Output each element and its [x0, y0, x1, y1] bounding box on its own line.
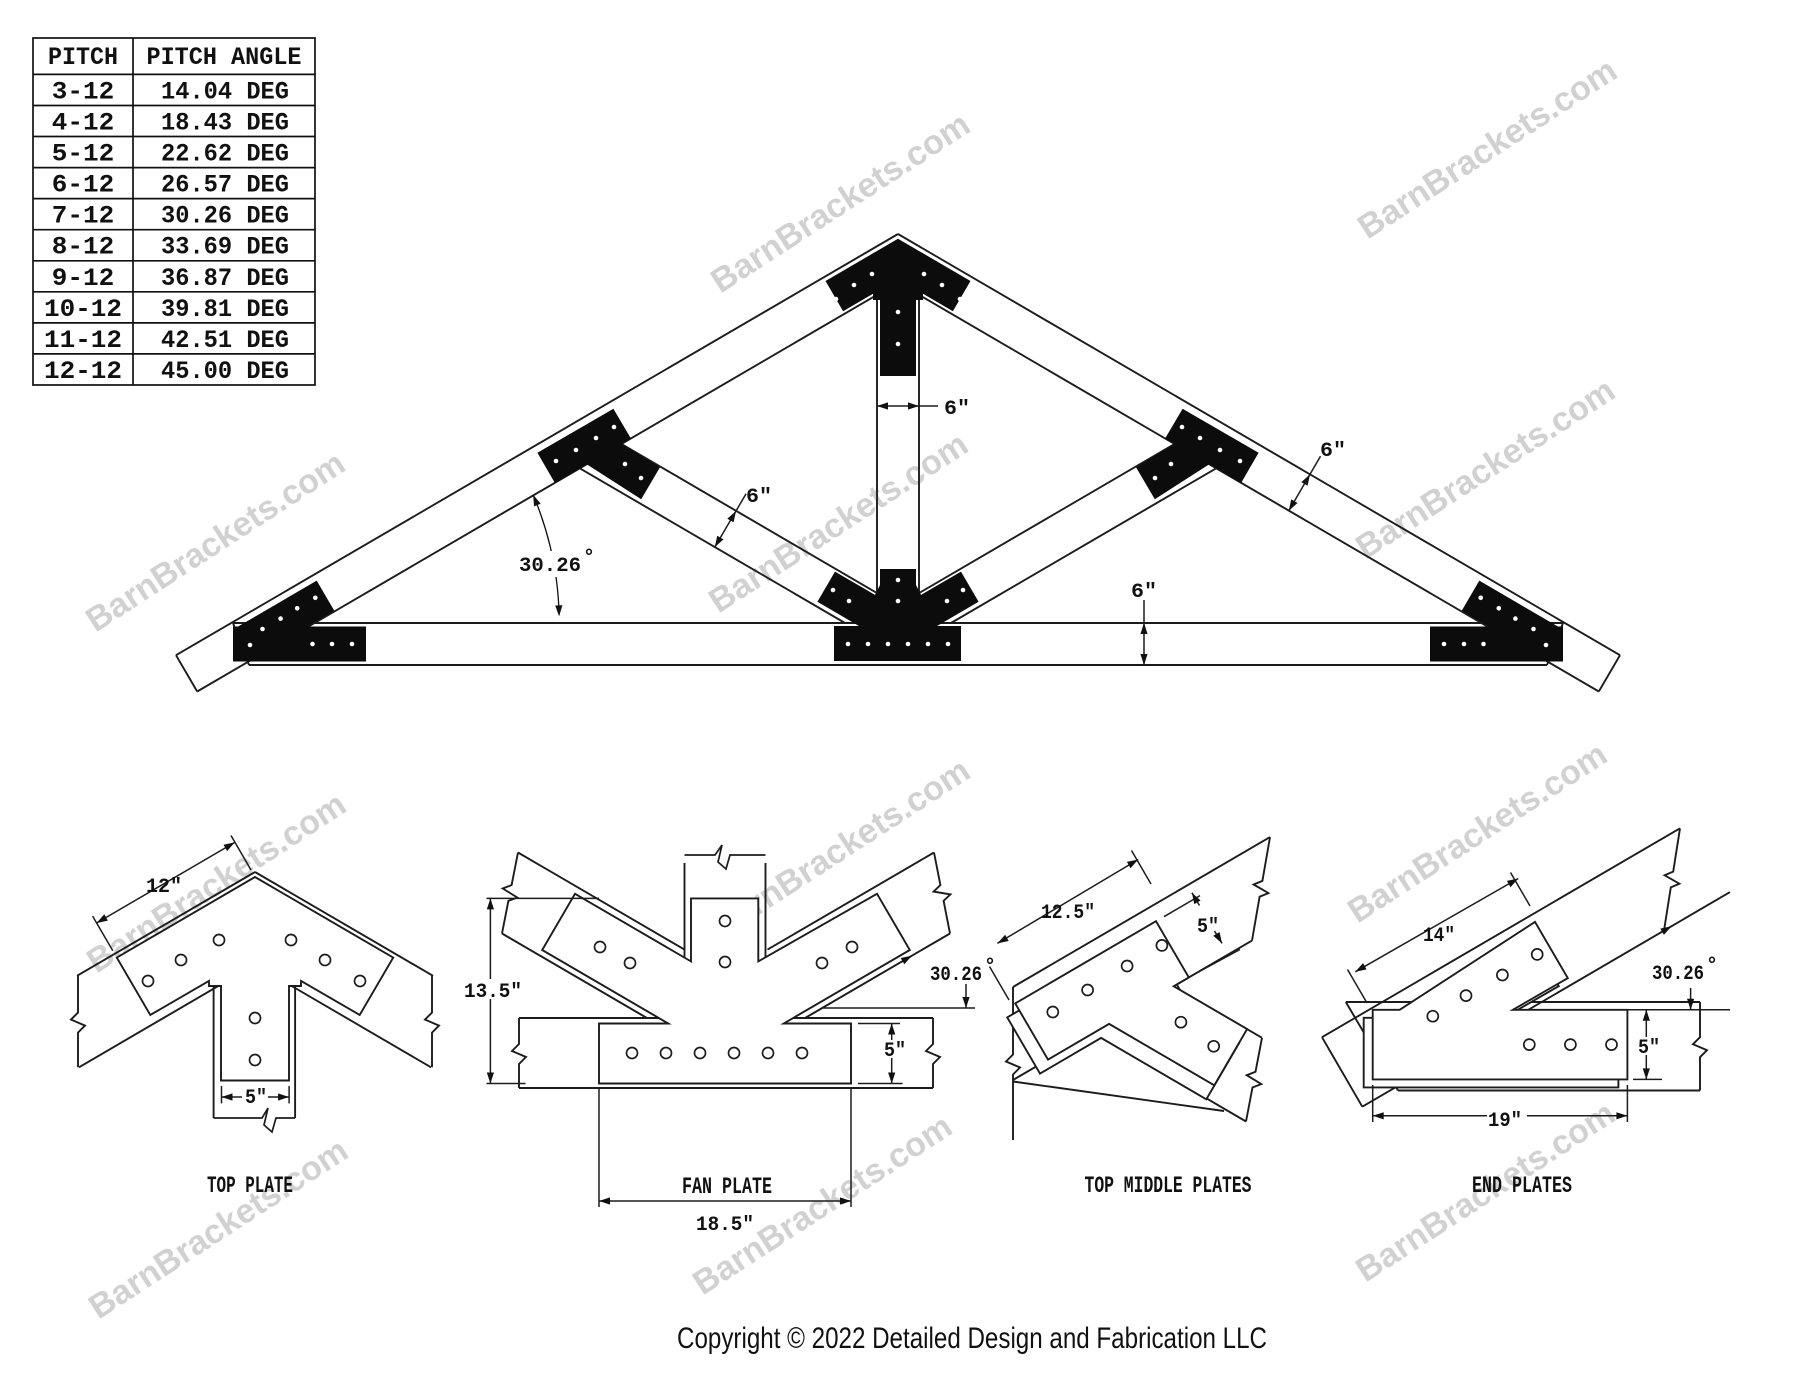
svg-text:5": 5" — [1638, 1037, 1660, 1060]
svg-text:36.87 DEG: 36.87 DEG — [161, 264, 289, 293]
svg-text:11-12: 11-12 — [44, 326, 122, 355]
svg-text:FAN PLATE: FAN PLATE — [682, 1174, 772, 1200]
svg-text:13.5": 13.5" — [464, 981, 522, 1004]
svg-text:42.51 DEG: 42.51 DEG — [161, 326, 289, 355]
svg-text:10-12: 10-12 — [44, 295, 122, 324]
svg-text:°: ° — [1706, 955, 1718, 978]
svg-text:6": 6" — [746, 486, 772, 509]
svg-text:5-12: 5-12 — [52, 140, 114, 169]
svg-text:30.26: 30.26 — [1652, 963, 1704, 986]
svg-text:30.26: 30.26 — [930, 964, 982, 987]
svg-text:4-12: 4-12 — [52, 109, 114, 138]
svg-text:PITCH: PITCH — [48, 43, 118, 72]
svg-text:6": 6" — [1320, 440, 1346, 463]
svg-text:14.04 DEG: 14.04 DEG — [161, 77, 289, 106]
svg-text:26.57 DEG: 26.57 DEG — [161, 171, 289, 200]
svg-text:TOP MIDDLE PLATES: TOP MIDDLE PLATES — [1085, 1173, 1252, 1199]
svg-text:5": 5" — [884, 1040, 906, 1063]
svg-text:30.26 DEG: 30.26 DEG — [161, 202, 289, 231]
svg-text:°: ° — [583, 547, 595, 570]
svg-text:5": 5" — [245, 1087, 267, 1110]
svg-text:22.62 DEG: 22.62 DEG — [161, 140, 289, 169]
svg-text:14": 14" — [1423, 925, 1455, 948]
svg-text:18.43 DEG: 18.43 DEG — [161, 109, 289, 138]
svg-text:6": 6" — [1131, 581, 1157, 604]
svg-text:39.81 DEG: 39.81 DEG — [161, 295, 289, 324]
svg-text:12": 12" — [146, 876, 182, 899]
svg-text:3-12: 3-12 — [52, 77, 114, 106]
svg-text:8-12: 8-12 — [52, 233, 114, 262]
svg-text:Copyright © 2022 Detailed Desi: Copyright © 2022 Detailed Design and Fab… — [677, 1322, 1267, 1355]
svg-text:30.26: 30.26 — [519, 555, 581, 578]
svg-text:9-12: 9-12 — [52, 264, 114, 293]
svg-text:5": 5" — [1197, 916, 1219, 939]
svg-text:33.69 DEG: 33.69 DEG — [161, 233, 289, 262]
svg-text:6-12: 6-12 — [52, 171, 114, 200]
svg-text:7-12: 7-12 — [52, 202, 114, 231]
svg-text:18.5": 18.5" — [696, 1214, 754, 1237]
svg-text:12-12: 12-12 — [44, 357, 122, 386]
svg-text:12.5": 12.5" — [1041, 902, 1095, 925]
svg-text:45.00 DEG: 45.00 DEG — [161, 357, 289, 386]
svg-text:TOP PLATE: TOP PLATE — [207, 1173, 293, 1199]
svg-text:PITCH ANGLE: PITCH ANGLE — [147, 43, 302, 72]
svg-text:END PLATES: END PLATES — [1472, 1173, 1572, 1199]
svg-text:19": 19" — [1488, 1110, 1522, 1133]
svg-text:6": 6" — [944, 398, 970, 421]
